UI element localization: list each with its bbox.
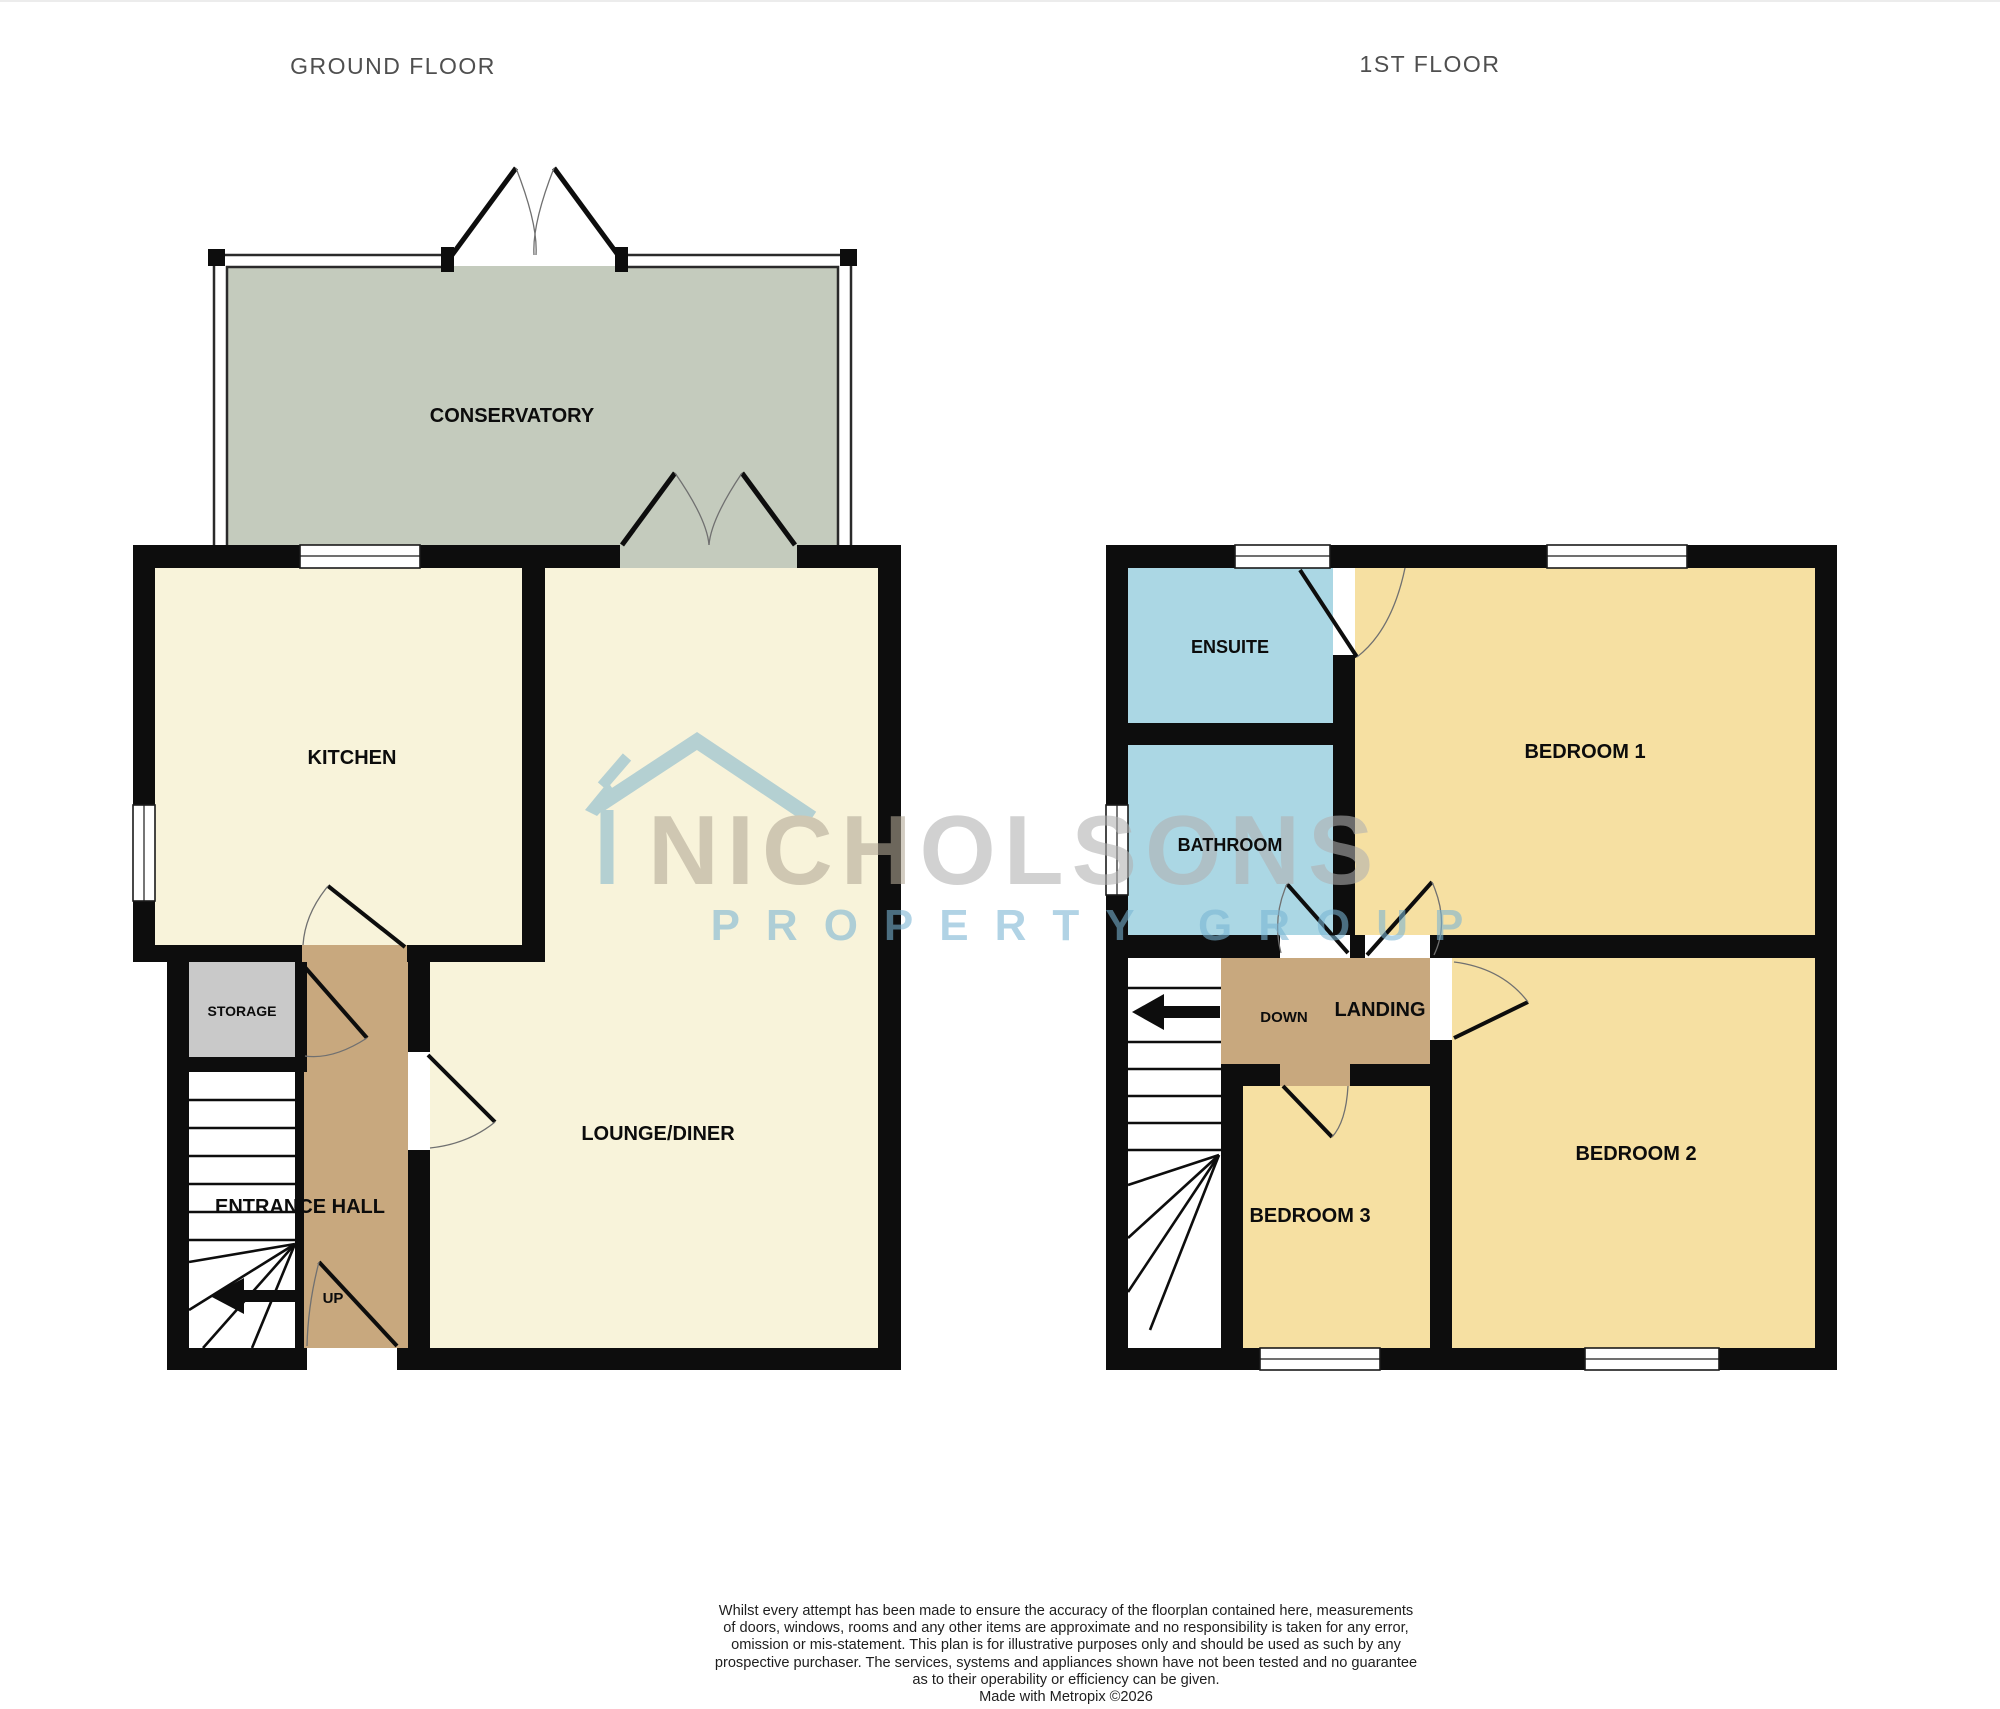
- disclaimer-line: Whilst every attempt has been made to en…: [316, 1603, 1816, 1620]
- disclaimer-text: Whilst every attempt has been made to en…: [316, 1603, 1816, 1706]
- label-down: DOWN: [1260, 1009, 1308, 1026]
- first-floor-plan: [1106, 545, 1837, 1370]
- window-bedroom2-bottom: [1585, 1348, 1719, 1370]
- label-landing: LANDING: [1334, 999, 1425, 1021]
- label-entrance-hall: ENTRANCE HALL: [215, 1196, 385, 1218]
- window-ensuite-top: [1235, 545, 1330, 568]
- room-entrance-hall: [302, 945, 408, 1348]
- ground-floor-plan: [133, 168, 901, 1370]
- window-kitchen-left: [133, 805, 155, 901]
- label-kitchen: KITCHEN: [308, 747, 397, 769]
- disclaimer-line: of doors, windows, rooms and any other i…: [316, 1620, 1816, 1637]
- label-bedroom-3: BEDROOM 3: [1249, 1205, 1370, 1227]
- brand-tagline: PROPERTY GROUP: [711, 901, 1490, 950]
- floor-title-first: 1ST FLOOR: [1360, 51, 1501, 77]
- label-ensuite: ENSUITE: [1191, 637, 1269, 657]
- label-conservatory: CONSERVATORY: [430, 405, 595, 427]
- label-lounge-diner: LOUNGE/DINER: [581, 1123, 735, 1145]
- floor-title-ground: GROUND FLOOR: [290, 53, 496, 79]
- disclaimer-line: as to their operability or efficiency ca…: [316, 1672, 1816, 1689]
- disclaimer-line: prospective purchaser. The services, sys…: [316, 1655, 1816, 1672]
- label-bedroom-2: BEDROOM 2: [1575, 1143, 1696, 1165]
- window-bedroom1-top: [1547, 545, 1687, 568]
- window-kitchen-top: [300, 545, 420, 568]
- window-bedroom3-bottom: [1260, 1348, 1380, 1370]
- label-storage: STORAGE: [208, 1003, 277, 1019]
- label-up: UP: [323, 1290, 344, 1307]
- disclaimer-line: Made with Metropix ©2026: [316, 1689, 1816, 1706]
- label-bathroom: BATHROOM: [1178, 835, 1283, 855]
- door-conservatory-external: [452, 168, 618, 255]
- label-bedroom-1: BEDROOM 1: [1524, 741, 1645, 763]
- disclaimer-line: omission or mis-statement. This plan is …: [316, 1637, 1816, 1654]
